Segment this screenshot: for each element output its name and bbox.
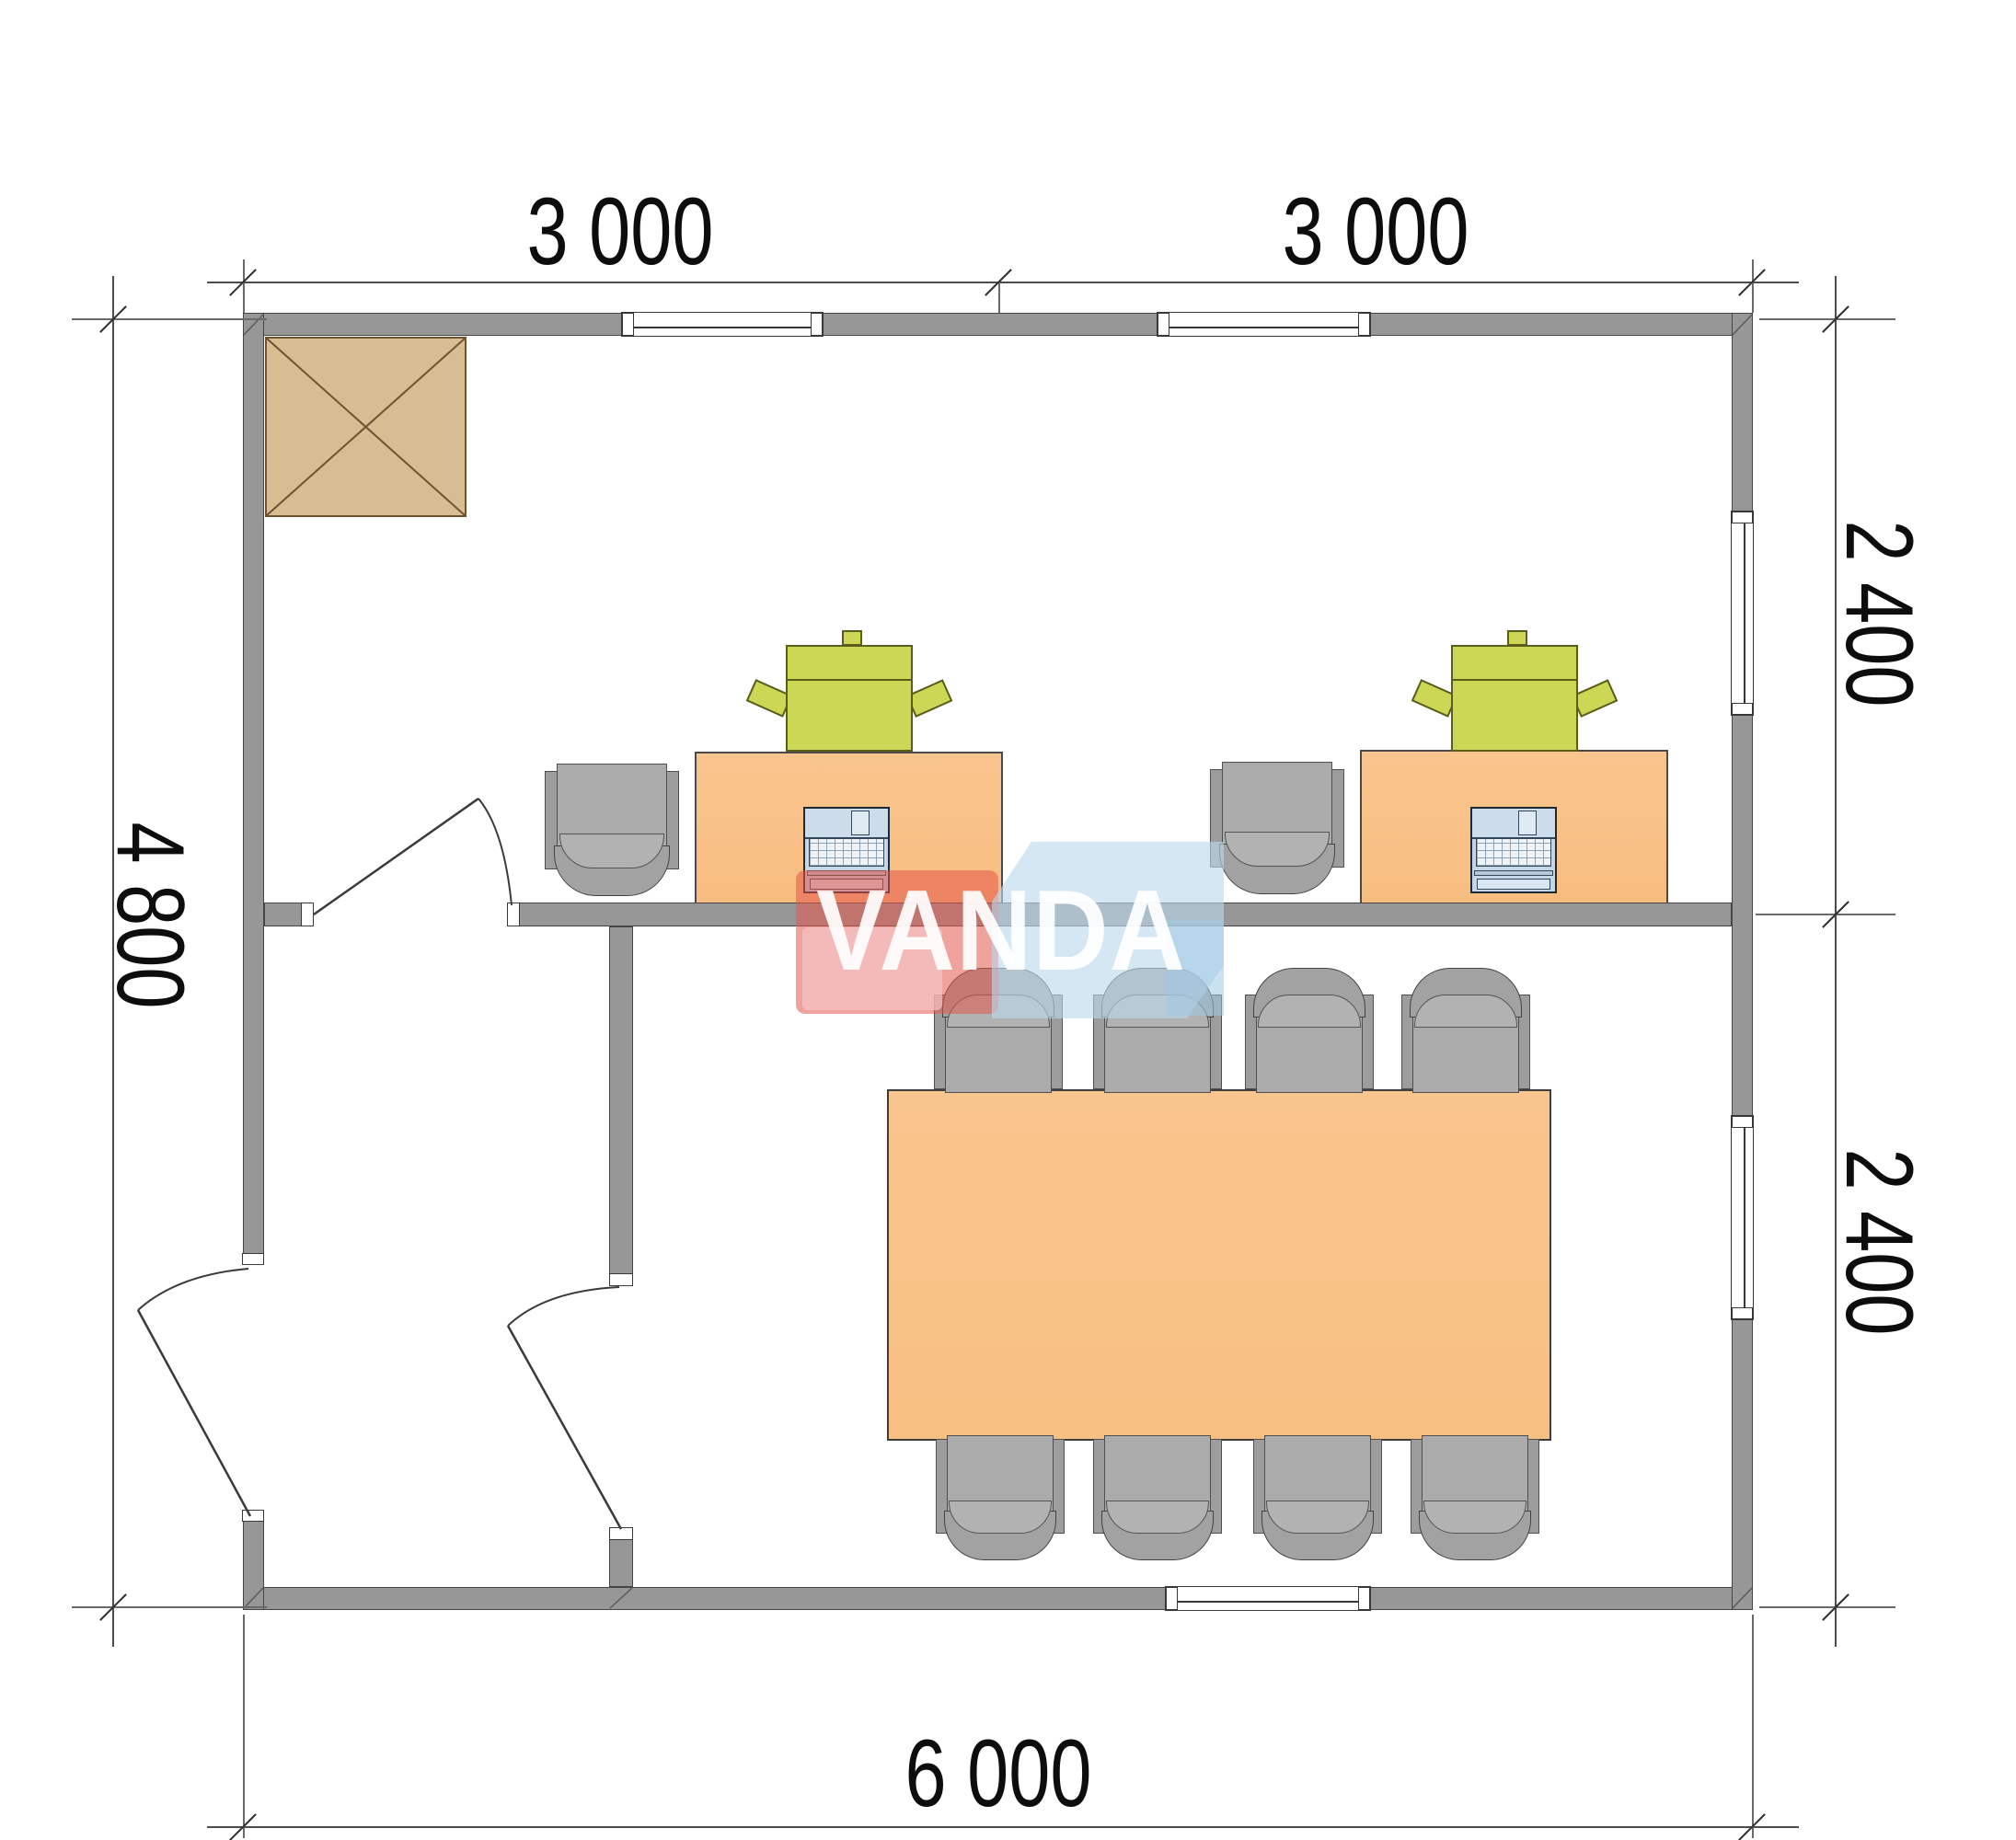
dimension-label-top-left: 3 000 bbox=[526, 184, 713, 280]
dimension-label-right-upper: 2 400 bbox=[1831, 520, 1927, 707]
floor-plan: 3 000 3 000 4 800 2 400 2 400 6 000 VAND… bbox=[0, 0, 2016, 1840]
dimension-line-top bbox=[207, 282, 1799, 283]
dimension-label-top-right: 3 000 bbox=[1282, 184, 1469, 280]
dimension-label-left: 4 800 bbox=[102, 822, 198, 1008]
dimension-line-right bbox=[1835, 276, 1837, 1647]
vanda-watermark-text: VANDA bbox=[816, 874, 1186, 988]
dimension-label-bottom: 6 000 bbox=[904, 1726, 1091, 1822]
dimension-label-right-lower: 2 400 bbox=[1831, 1148, 1927, 1335]
